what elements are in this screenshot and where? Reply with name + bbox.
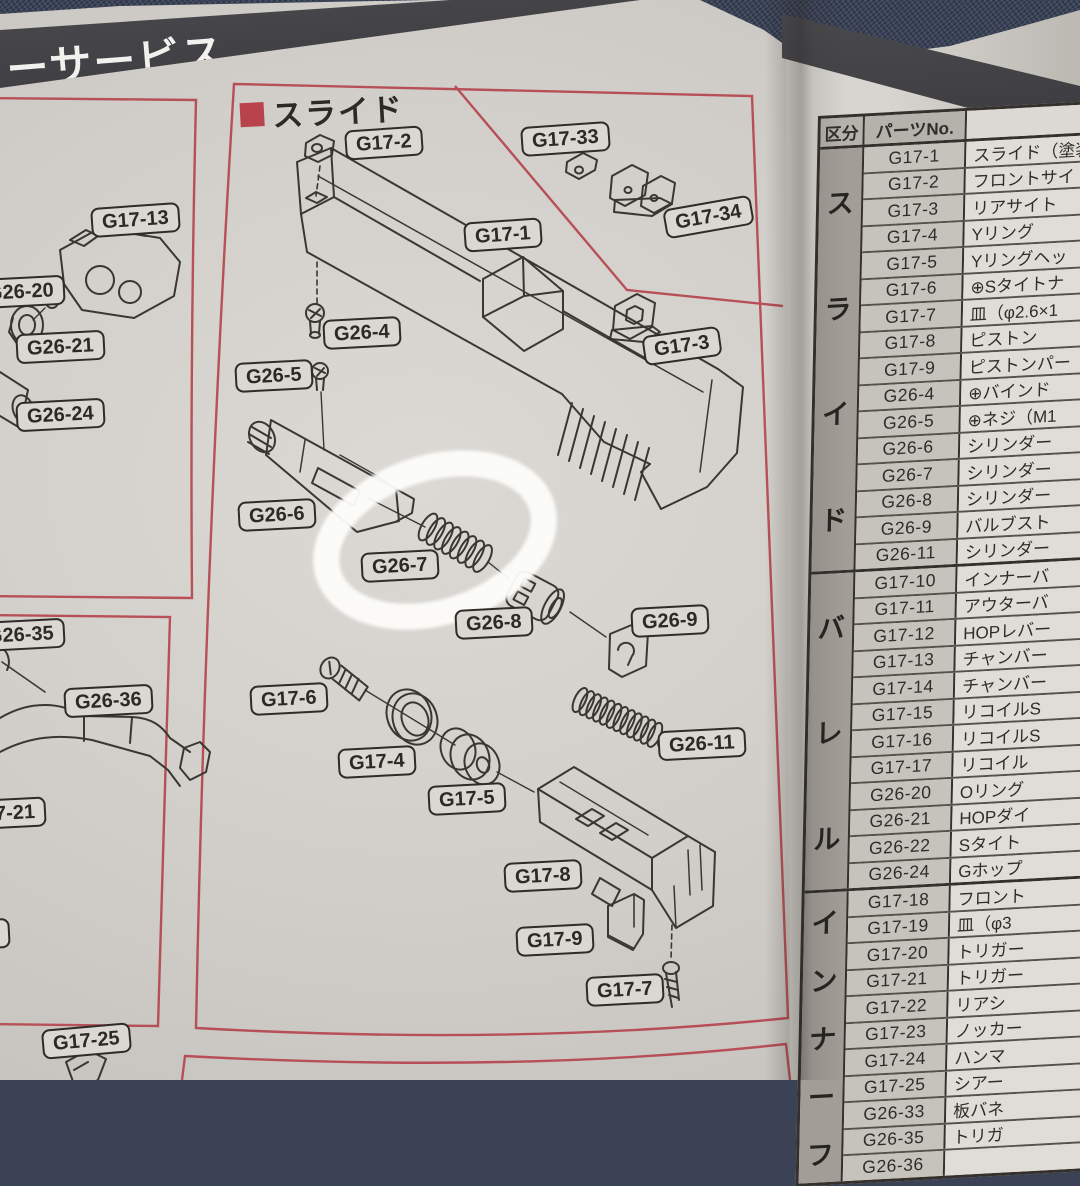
part-label-G17-34: G17-34: [662, 195, 755, 240]
part-label-G26-36: G26-36: [63, 684, 153, 719]
category-char: イ: [822, 392, 850, 432]
table-body: スライドG17-1スライド（塗装G17-2フロントサイG17-3リアサイトG17…: [799, 125, 1080, 1183]
section-rows: G17-10インナーバG17-11アウターバG17-12HOPレバーG17-13…: [849, 550, 1080, 888]
category-char: ー: [808, 1075, 836, 1115]
section-category-label: バレル: [805, 572, 856, 890]
category-char: ナ: [809, 1017, 837, 1057]
category-char: レ: [815, 711, 843, 751]
part-label-G17-9: G17-9: [515, 923, 594, 957]
part-label-G17-1: G17-1: [463, 217, 542, 252]
part-label-G17-13: G17-13: [90, 202, 181, 238]
part-label-G26-4: G26-4: [322, 316, 401, 350]
part-label-G26-7: G26-7: [360, 549, 439, 583]
table-section: インナーフG17-18フロントG17-19皿（φ3G17-20トリガーG17-2…: [799, 866, 1080, 1183]
category-char: ル: [813, 817, 841, 857]
category-char: ス: [826, 181, 854, 221]
category-char: イ: [811, 901, 839, 941]
part-label-G26-11: G26-11: [657, 727, 746, 762]
part-label-G17-4: G17-4: [337, 745, 416, 779]
section-category-label: インナーフ: [799, 891, 849, 1183]
cell-part-no: G26-36: [843, 1151, 946, 1181]
category-char: ン: [810, 959, 838, 999]
part-label-G17-33: G17-33: [520, 121, 611, 157]
parts-list-table: 区分 パーツNo. パーツ名 スライドG17-1スライド（塗装G17-2フロント…: [796, 91, 1080, 1186]
part-label-G26-35: G26-35: [0, 618, 65, 653]
part-label-G17-8: G17-8: [503, 859, 582, 893]
part-label-G17-6: G17-6: [249, 682, 328, 716]
part-label-G26-24: G26-24: [15, 398, 105, 433]
table-section: スライドG17-1スライド（塗装G17-2フロントサイG17-3リアサイトG17…: [811, 125, 1080, 571]
part-label-G26-5: G26-5: [234, 359, 313, 393]
header-category: 区分: [820, 116, 865, 146]
part-label-G26-8: G26-8: [454, 606, 533, 640]
category-char: バ: [817, 606, 845, 646]
part-label-7-21: 7-21: [0, 796, 47, 829]
part-label-20: 20: [0, 918, 11, 950]
part-label-G17-5: G17-5: [427, 782, 506, 816]
category-char: ラ: [824, 287, 852, 327]
section-rows: G17-1スライド（塗装G17-2フロントサイG17-3リアサイトG17-4Yリ…: [856, 125, 1080, 569]
part-label-G17-7: G17-7: [585, 973, 664, 1007]
part-label-G17-3: G17-3: [641, 326, 722, 367]
category-char: フ: [806, 1133, 834, 1173]
table-section: バレルG17-10インナーバG17-11アウターバG17-12HOPレバーG17…: [805, 547, 1080, 890]
part-label-G26-20: G26-20: [0, 275, 65, 310]
header-part-no: パーツNo.: [864, 111, 967, 145]
part-label-G17-2: G17-2: [344, 125, 423, 160]
section-rows: G17-18フロントG17-19皿（φ3G17-20トリガーG17-21トリガー…: [843, 869, 1080, 1181]
category-char: ド: [820, 498, 848, 538]
part-label-G26-6: G26-6: [237, 498, 316, 532]
part-label-G26-9: G26-9: [630, 604, 709, 638]
part-label-G17-25: G17-25: [41, 1022, 132, 1060]
part-label-G26-21: G26-21: [15, 330, 105, 365]
